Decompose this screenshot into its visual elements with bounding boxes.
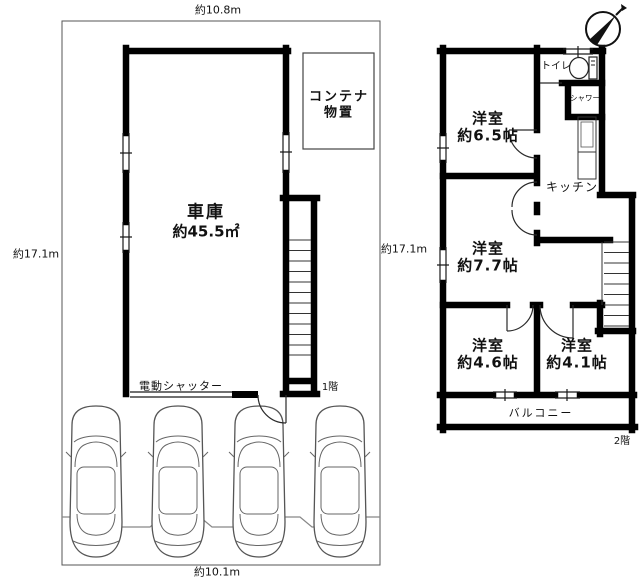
- room-2-name: 洋室: [472, 242, 504, 257]
- room-1-size: 約6.5帖: [457, 129, 519, 144]
- container-label-1: コンテナ: [309, 91, 369, 104]
- garage-name-label: 車庫: [187, 205, 225, 222]
- staircase-2f: [602, 242, 629, 326]
- room-4-name: 洋室: [561, 339, 593, 354]
- container-label-2: 物置: [324, 107, 354, 120]
- shutter-line: [130, 392, 232, 397]
- toilet-label: トイレ: [541, 62, 571, 72]
- toilet-fixture-icon: [570, 57, 598, 79]
- car-1: [66, 406, 126, 557]
- garage-area-label: 約45.5㎡: [172, 225, 239, 240]
- floor-label-1f: 1階: [322, 383, 338, 393]
- room-3-name: 洋室: [472, 339, 504, 354]
- room-4-size: 約4.1帖: [546, 356, 608, 371]
- room-3-size: 約4.6帖: [457, 356, 519, 371]
- shower-label: シャワー: [570, 94, 600, 102]
- shutter-label: 電動シャッター: [139, 381, 223, 392]
- balcony-label: バルコニー: [509, 408, 574, 419]
- floor-label-2f: 2階: [614, 437, 630, 447]
- staircase-1f: [289, 240, 311, 355]
- kitchen-counter: [578, 117, 596, 179]
- car-3: [229, 406, 289, 557]
- room-1-name: 洋室: [472, 112, 504, 127]
- car-2: [148, 406, 208, 557]
- kitchen-label: キッチン: [546, 181, 598, 193]
- dimension-top-1f: 約10.8m: [195, 5, 241, 16]
- north-arrow-compass-icon: [586, 4, 627, 46]
- car-4: [310, 406, 370, 557]
- floorplan-page: 約10.8m 約17.1m 約10.1m 約17.1m 車庫 約45.5㎡ コン…: [0, 0, 639, 580]
- floorplan-drawing: [0, 0, 639, 580]
- dimension-left-2f: 約17.1m: [381, 244, 427, 255]
- dimension-left-1f: 約17.1m: [13, 249, 59, 260]
- dimension-bottom-1f: 約10.1m: [194, 567, 240, 578]
- room-2-size: 約7.7帖: [457, 259, 519, 274]
